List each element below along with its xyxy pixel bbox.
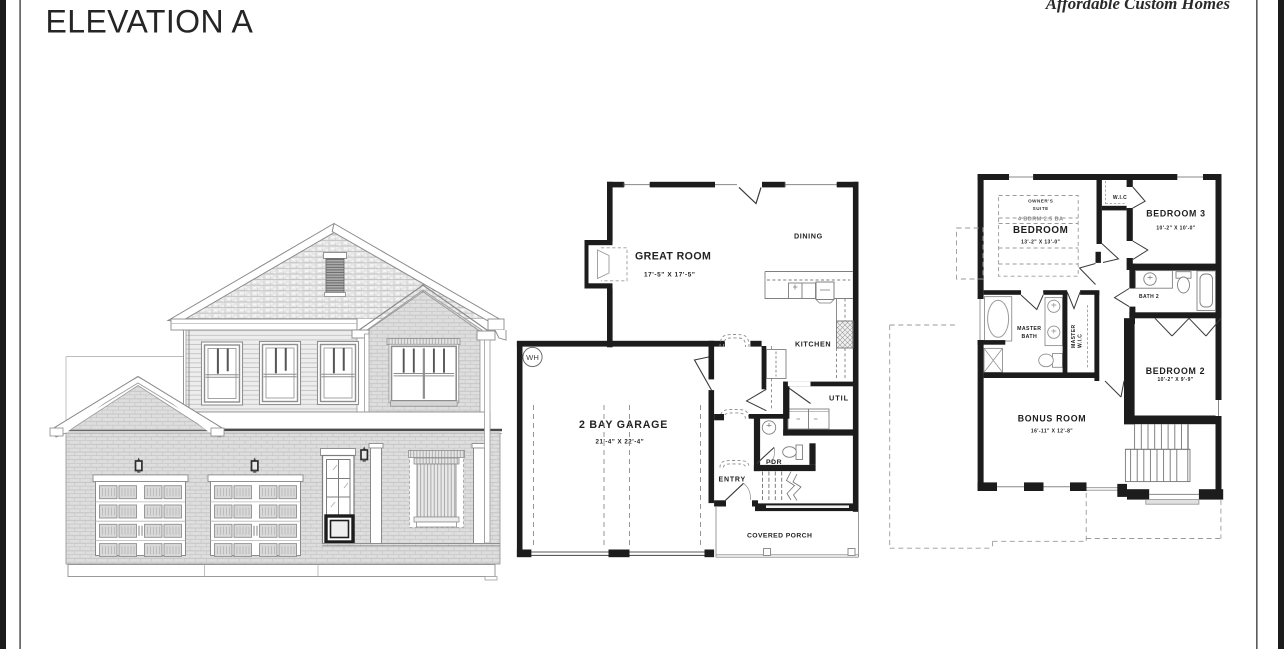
svg-text:W.I.C: W.I.C: [1078, 334, 1084, 348]
svg-text:10'-2" X 10'-0": 10'-2" X 10'-0": [1156, 225, 1195, 231]
svg-text:BEDROOM: BEDROOM: [1013, 225, 1068, 236]
svg-text:Affordable Custom Homes: Affordable Custom Homes: [1045, 0, 1231, 13]
svg-text:ELEVATION A: ELEVATION A: [46, 4, 254, 40]
svg-text:ENTRY: ENTRY: [719, 476, 746, 483]
svg-text:BATH: BATH: [1021, 334, 1037, 340]
svg-text:16'-11" X 12'-8": 16'-11" X 12'-8": [1031, 428, 1073, 434]
svg-text:KITCHEN: KITCHEN: [795, 339, 831, 348]
svg-text:BONUS ROOM: BONUS ROOM: [1018, 414, 1087, 424]
svg-text:10'-2" X 9'-9": 10'-2" X 9'-9": [1157, 377, 1193, 383]
svg-text:MASTER: MASTER: [1017, 326, 1041, 332]
svg-text:OWNER'S: OWNER'S: [1028, 199, 1053, 204]
svg-text:21'-4" X 22'-4": 21'-4" X 22'-4": [596, 438, 645, 445]
svg-text:4 BDRM 2.5 BA: 4 BDRM 2.5 BA: [1018, 216, 1064, 222]
svg-text:2 BAY GARAGE: 2 BAY GARAGE: [579, 419, 668, 431]
svg-text:BEDROOM 2: BEDROOM 2: [1146, 366, 1206, 376]
svg-text:PDR: PDR: [766, 459, 782, 466]
svg-text:BEDROOM 3: BEDROOM 3: [1146, 209, 1206, 219]
svg-text:SUITE: SUITE: [1033, 206, 1049, 211]
svg-text:GREAT ROOM: GREAT ROOM: [635, 251, 711, 263]
svg-text:MASTER: MASTER: [1071, 324, 1077, 348]
svg-text:17'-5" X 17'-5": 17'-5" X 17'-5": [644, 271, 696, 278]
svg-text:WH: WH: [526, 353, 539, 362]
svg-text:13'-2" X 13'-0": 13'-2" X 13'-0": [1021, 240, 1060, 246]
svg-text:BATH 2: BATH 2: [1139, 294, 1159, 300]
svg-text:DINING: DINING: [794, 231, 823, 240]
svg-text:UTIL: UTIL: [829, 394, 849, 403]
svg-text:W.I.C: W.I.C: [1113, 195, 1127, 201]
svg-text:COVERED PORCH: COVERED PORCH: [747, 533, 812, 540]
